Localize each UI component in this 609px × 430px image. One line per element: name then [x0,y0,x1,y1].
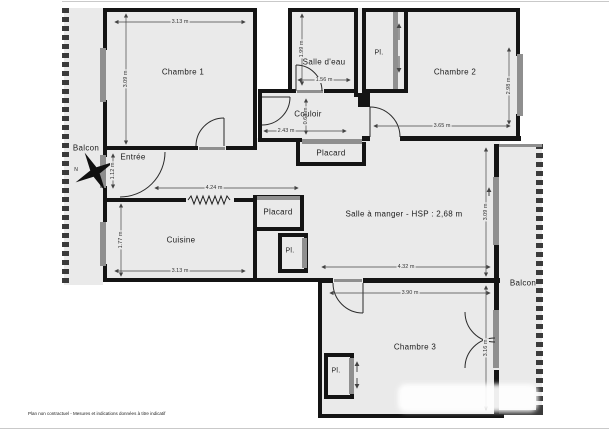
dim-entree-height: 1.12 m [110,162,116,181]
door-arc-couloir [262,97,290,125]
label-pl-chambre2: Pl. [374,50,383,57]
label-placard-sejour: Placard [263,208,292,217]
label-placard-couloir: Placard [316,149,345,158]
label-balcon-right: Balcon [510,279,536,288]
label-couloir: Couloir [294,110,321,119]
dim-hall-width: 4.24 m [205,185,224,191]
label-entree: Entrée [118,153,147,162]
floor-plan: 3.13 m 3.09 m 1.99 m 1.56 m 3.65 m 2.98 … [0,0,609,430]
dim-salle-a-manger-width: 4.32 m [397,264,416,270]
sliding-arrows [357,24,489,388]
label-pl-chambre3: Pl. [331,368,340,375]
dim-salle-eau-height: 1.99 m [299,40,305,59]
label-salle-a-manger: Salle à manger - HSP : 2,68 m [345,210,462,219]
label-salle-eau: Salle d'eau [303,58,346,67]
dim-cuisine-width: 3.13 m [171,268,190,274]
label-cuisine: Cuisine [167,236,196,245]
dim-chambre2-height: 2.98 m [506,77,512,96]
dim-chambre2-width: 3.65 m [433,123,452,129]
dim-chambre3-width: 3.90 m [401,290,420,296]
label-chambre3: Chambre 3 [394,343,436,352]
door-arc-balcony-door-1 [465,312,495,342]
dim-salle-a-manger-height: 3.09 m [483,203,489,222]
dim-chambre3-height: 3.16 m [483,339,489,358]
radiator-icon [188,196,230,204]
label-chambre2: Chambre 2 [434,68,476,77]
watermark-blob [398,384,538,412]
dim-couloir-width: 2.43 m [277,128,296,134]
dim-salle-eau-width: 1.56 m [315,77,334,83]
door-arc-balcony-door-2 [465,338,495,368]
label-chambre1: Chambre 1 [162,68,204,77]
compass-letter: N [74,167,78,173]
footer-disclaimer: Plan non contractuel - Mesures et indica… [28,411,165,416]
dim-chambre1-width: 3.13 m [171,19,190,25]
label-balcon-left: Balcon [73,144,99,153]
dim-cuisine-height: 1.77 m [118,231,124,250]
door-arc-chambre3 [333,283,363,313]
door-arc-chambre2 [370,107,400,137]
dim-chambre1-height: 3.09 m [123,70,129,89]
label-pl-sejour: Pl. [285,248,294,255]
door-arc-chambre1 [196,118,224,146]
